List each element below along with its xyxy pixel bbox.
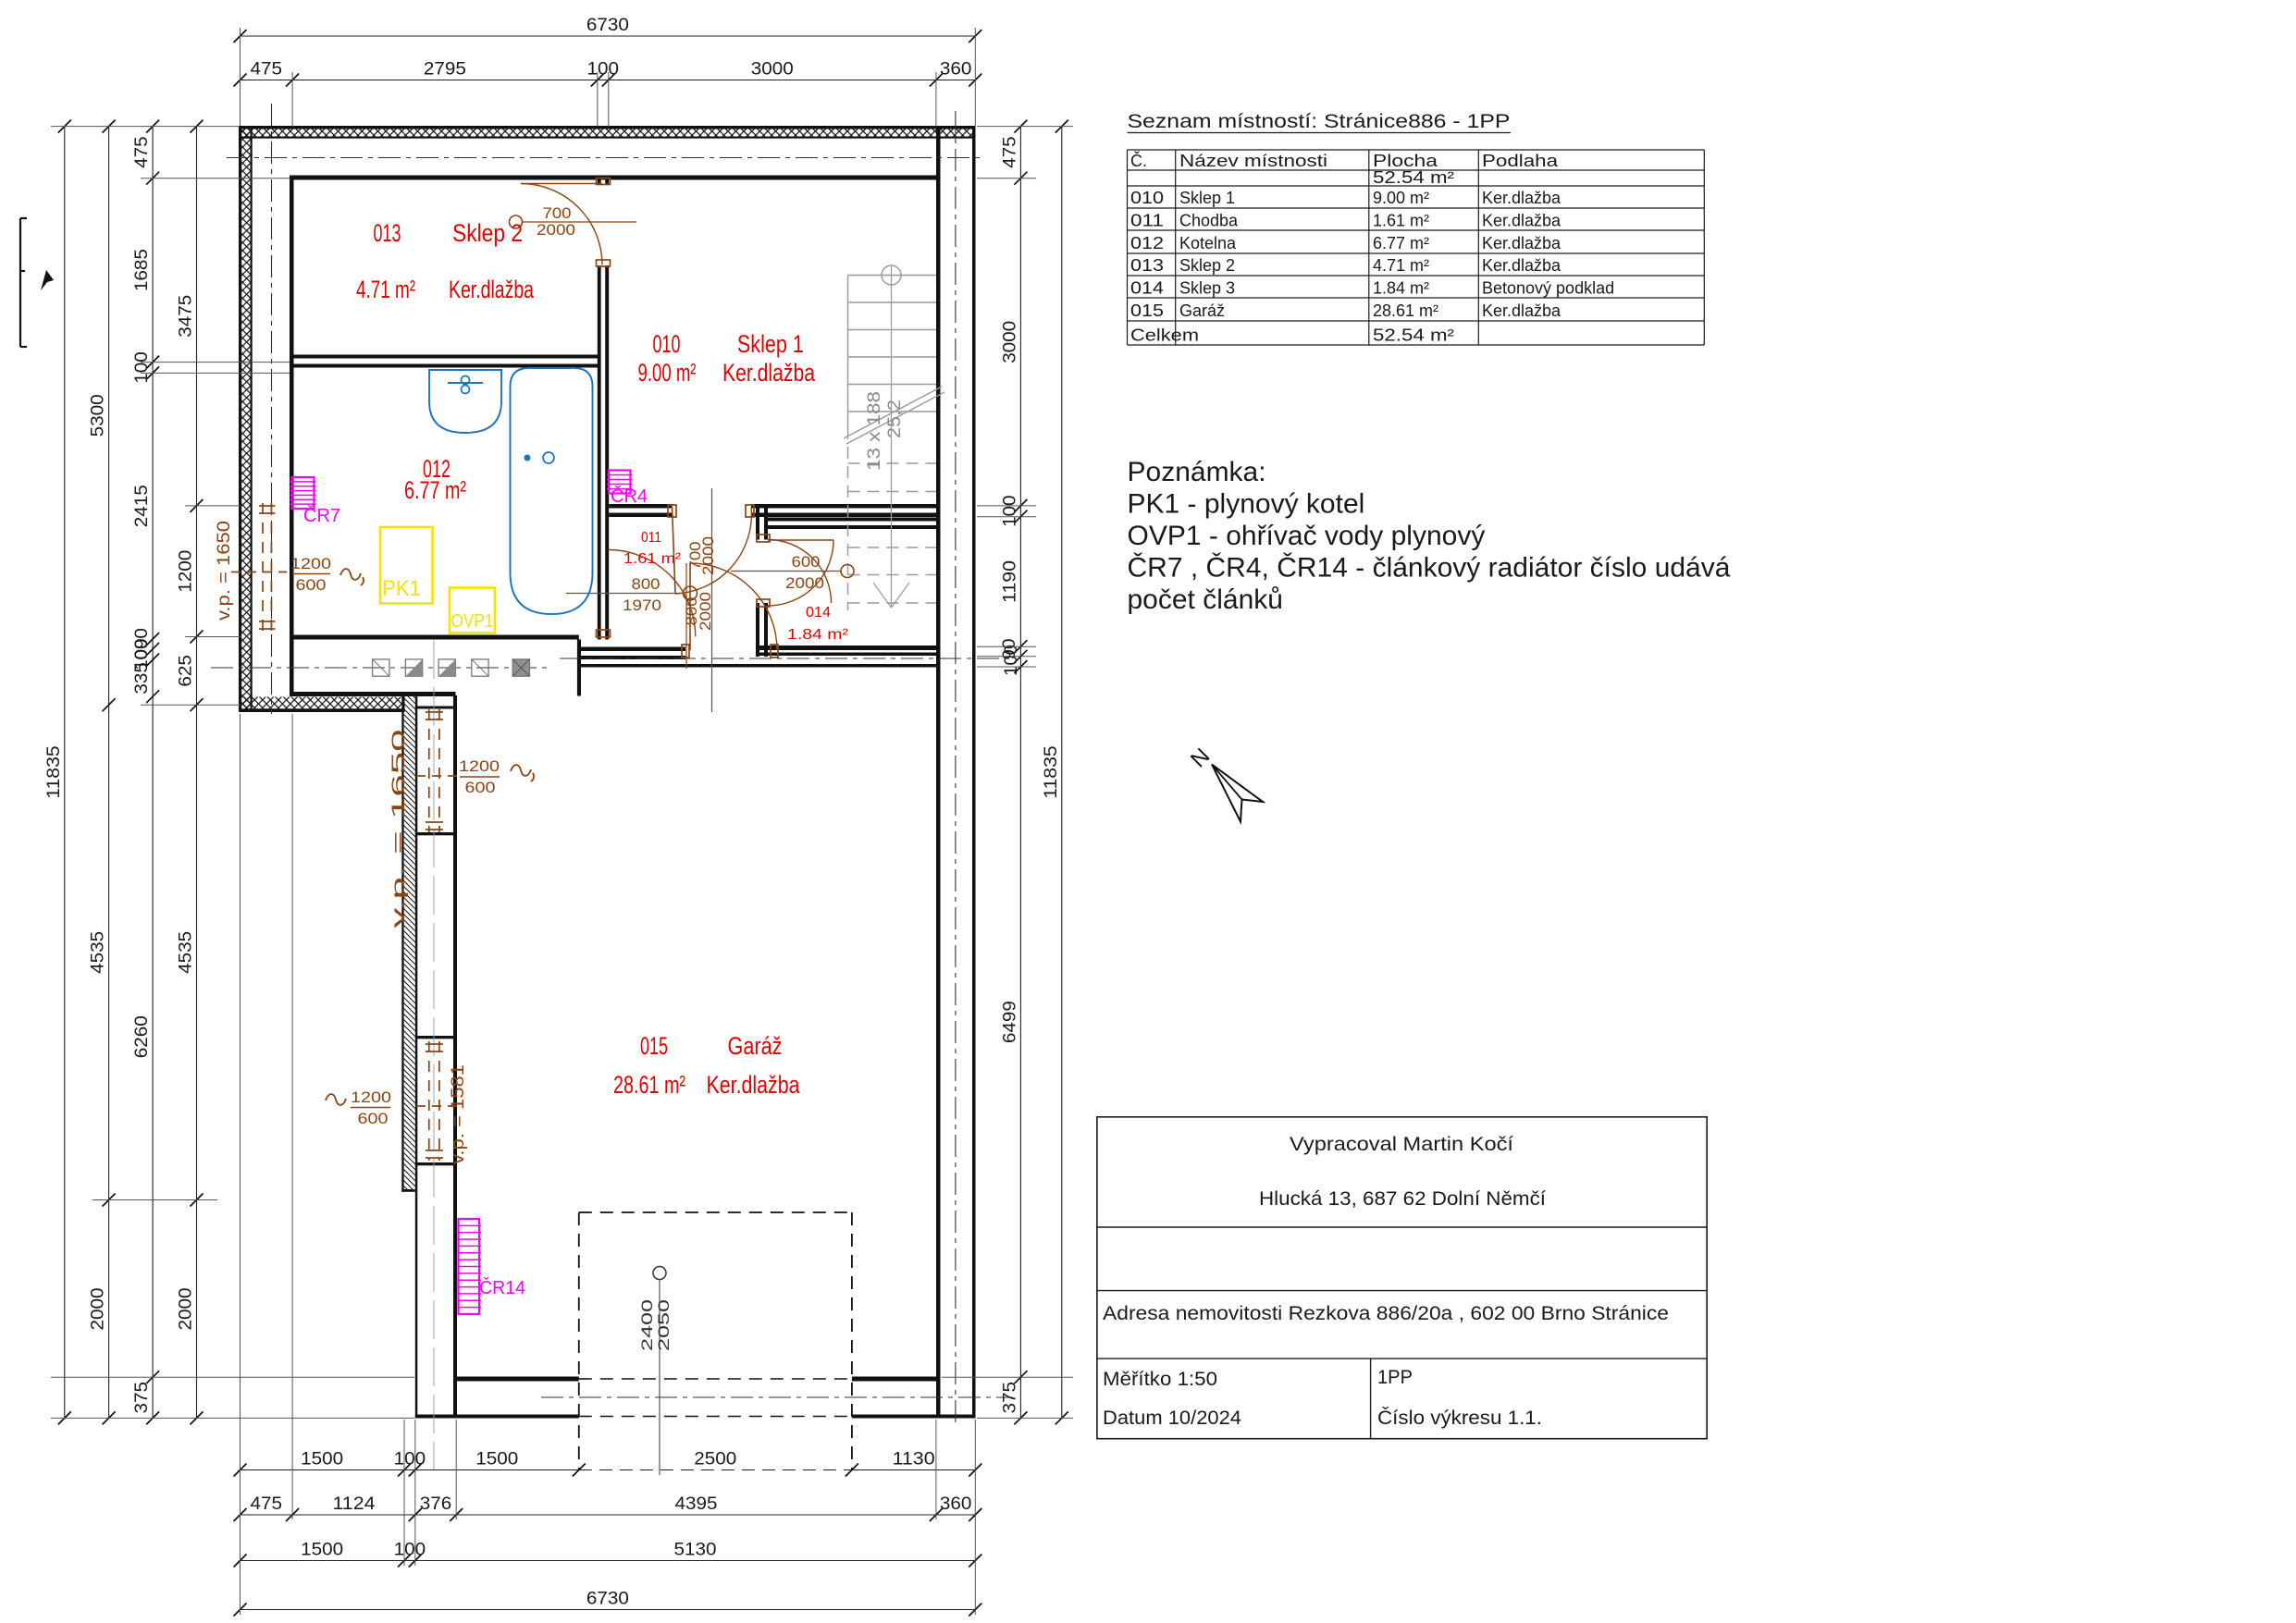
svg-text:9.00 m²: 9.00 m² — [638, 359, 697, 387]
svg-text:Sklep 1: Sklep 1 — [1179, 189, 1235, 207]
svg-text:Číslo výkresu 1.1.: Číslo výkresu 1.1. — [1377, 1408, 1542, 1429]
svg-text:014: 014 — [806, 605, 831, 621]
svg-text:1200: 1200 — [459, 757, 500, 775]
svg-text:011: 011 — [641, 530, 661, 546]
svg-text:700: 700 — [543, 205, 572, 222]
svg-text:PK1: PK1 — [382, 576, 421, 601]
svg-text:Poznámka:: Poznámka: — [1128, 457, 1266, 487]
svg-text:2000: 2000 — [697, 592, 714, 631]
svg-text:1124: 1124 — [333, 1494, 376, 1514]
svg-text:28.61 m²: 28.61 m² — [613, 1071, 685, 1099]
svg-text:2415: 2415 — [132, 485, 152, 527]
svg-text:2000: 2000 — [700, 536, 717, 575]
svg-text:13 x 188: 13 x 188 — [865, 391, 884, 471]
svg-text:475: 475 — [251, 60, 283, 80]
svg-text:Vypracoval Martin Kočí: Vypracoval Martin Kočí — [1290, 1134, 1513, 1155]
svg-text:Název místnosti: Název místnosti — [1179, 152, 1327, 170]
svg-text:Seznam místností: Stránice886: Seznam místností: Stránice886 - 1PP — [1128, 111, 1511, 132]
svg-text:4535: 4535 — [176, 931, 195, 974]
svg-text:1500: 1500 — [301, 1450, 343, 1469]
svg-text:375: 375 — [1000, 1382, 1019, 1414]
svg-text:600: 600 — [358, 1110, 389, 1127]
svg-text:376: 376 — [420, 1494, 452, 1514]
svg-text:Podlaha: Podlaha — [1482, 152, 1559, 170]
svg-text:počet článků: počet článků — [1128, 584, 1283, 615]
svg-text:335: 335 — [132, 662, 152, 695]
svg-text:3000: 3000 — [751, 60, 794, 80]
svg-text:6.77 m²: 6.77 m² — [1373, 234, 1429, 252]
svg-text:1PP: 1PP — [1377, 1367, 1413, 1388]
svg-text:4.71 m²: 4.71 m² — [1373, 256, 1429, 275]
svg-text:1500: 1500 — [475, 1450, 518, 1469]
svg-text:4535: 4535 — [89, 931, 108, 974]
svg-text:ČR7: ČR7 — [303, 505, 340, 526]
svg-text:100: 100 — [1000, 496, 1019, 528]
svg-text:Ker.dlažba: Ker.dlažba — [1482, 189, 1562, 207]
svg-text:600: 600 — [465, 779, 496, 796]
svg-text:5130: 5130 — [674, 1541, 717, 1560]
svg-text:Kotelna: Kotelna — [1179, 234, 1237, 252]
svg-text:6.77 m²: 6.77 m² — [404, 476, 466, 504]
svg-text:1200: 1200 — [351, 1088, 391, 1106]
svg-text:5300: 5300 — [89, 394, 108, 436]
svg-text:1.84 m²: 1.84 m² — [787, 627, 849, 643]
svg-text:1130: 1130 — [893, 1450, 935, 1469]
svg-text:11835: 11835 — [44, 745, 64, 799]
svg-text:4395: 4395 — [675, 1494, 718, 1514]
svg-text:800: 800 — [632, 576, 660, 593]
svg-text:015: 015 — [1130, 301, 1164, 320]
svg-text:3475: 3475 — [177, 295, 196, 338]
svg-text:28.61 m²: 28.61 m² — [1373, 301, 1438, 320]
svg-text:625: 625 — [177, 655, 196, 687]
svg-text:Datum 10/2024: Datum 10/2024 — [1103, 1408, 1241, 1429]
svg-text:11835: 11835 — [1042, 745, 1061, 799]
svg-text:2000: 2000 — [89, 1287, 108, 1330]
svg-text:Celkem: Celkem — [1130, 326, 1199, 345]
svg-text:1.84 m²: 1.84 m² — [1373, 279, 1429, 298]
svg-text:52.54 m²: 52.54 m² — [1373, 326, 1454, 345]
svg-text:ČR4: ČR4 — [611, 486, 648, 507]
svg-text:100: 100 — [394, 1450, 426, 1469]
svg-text:v.p. = 1581: v.p. = 1581 — [449, 1064, 468, 1164]
svg-text:2050: 2050 — [655, 1299, 673, 1351]
svg-text:475: 475 — [132, 136, 152, 168]
svg-text:014: 014 — [1130, 279, 1164, 298]
svg-text:475: 475 — [251, 1494, 283, 1514]
svg-text:6730: 6730 — [586, 16, 629, 35]
svg-text:1.61 m²: 1.61 m² — [1373, 211, 1429, 229]
svg-text:OVP1 - ohřívač vody plynový: OVP1 - ohřívač vody plynový — [1128, 521, 1486, 551]
svg-text:2000: 2000 — [177, 1287, 196, 1330]
svg-text:360: 360 — [940, 60, 972, 80]
svg-text:Ker.dlažba: Ker.dlažba — [1482, 234, 1562, 252]
svg-text:Plocha: Plocha — [1373, 152, 1438, 170]
svg-text:Sklep 2: Sklep 2 — [1179, 256, 1235, 275]
svg-text:Betonový podklad: Betonový podklad — [1482, 279, 1614, 298]
svg-text:Chodba: Chodba — [1179, 211, 1239, 229]
svg-text:6260: 6260 — [132, 1015, 152, 1058]
svg-text:100: 100 — [132, 351, 152, 384]
svg-text:1970: 1970 — [623, 597, 661, 614]
svg-text:6730: 6730 — [586, 1590, 629, 1609]
svg-text:100: 100 — [587, 60, 620, 80]
svg-text:1200: 1200 — [177, 550, 196, 593]
svg-text:375: 375 — [132, 1382, 152, 1414]
svg-text:Sklep 2: Sklep 2 — [452, 219, 523, 247]
svg-text:015: 015 — [640, 1032, 668, 1060]
svg-text:100: 100 — [1002, 645, 1021, 676]
svg-text:2400: 2400 — [638, 1299, 656, 1351]
svg-text:Sklep 3: Sklep 3 — [1179, 279, 1235, 298]
svg-text:Ker.dlažba: Ker.dlažba — [1482, 301, 1562, 320]
svg-text:2000: 2000 — [537, 222, 575, 239]
svg-text:25,2: 25,2 — [885, 400, 905, 438]
svg-text:OVP1: OVP1 — [451, 611, 494, 632]
svg-text:010: 010 — [1130, 189, 1164, 207]
svg-text:2500: 2500 — [694, 1450, 736, 1469]
svg-text:v.p. = 1650: v.p. = 1650 — [389, 730, 409, 928]
svg-text:6499: 6499 — [1000, 1001, 1019, 1043]
svg-text:Garáž: Garáž — [1179, 301, 1225, 320]
svg-text:3000: 3000 — [1000, 321, 1019, 363]
svg-text:Adresa nemovitosti Rezkova 886: Adresa nemovitosti Rezkova 886/20a , 602… — [1103, 1303, 1669, 1324]
svg-text:600: 600 — [296, 576, 327, 594]
svg-text:Hlucká 13, 687 62 Dolní Němčí: Hlucká 13, 687 62 Dolní Němčí — [1259, 1188, 1546, 1210]
svg-text:Garáž: Garáž — [728, 1032, 783, 1060]
svg-text:011: 011 — [1130, 211, 1164, 229]
svg-text:360: 360 — [940, 1494, 972, 1514]
svg-text:1190: 1190 — [1000, 560, 1019, 603]
svg-text:v.p. = 1650: v.p. = 1650 — [215, 521, 234, 621]
svg-text:013: 013 — [1130, 256, 1164, 275]
svg-text:Ker.dlažba: Ker.dlažba — [707, 1071, 801, 1099]
svg-text:52.54 m²: 52.54 m² — [1373, 168, 1454, 187]
svg-text:2000: 2000 — [785, 575, 824, 592]
svg-text:1200: 1200 — [290, 555, 331, 572]
svg-text:2795: 2795 — [424, 60, 466, 80]
svg-text:012: 012 — [1130, 234, 1164, 252]
svg-text:PK1 - plynový kotel: PK1 - plynový kotel — [1128, 489, 1365, 520]
svg-text:Ker.dlažba: Ker.dlažba — [449, 276, 535, 303]
svg-text:1685: 1685 — [132, 249, 152, 291]
svg-text:Ker.dlažba: Ker.dlažba — [1482, 256, 1562, 275]
svg-text:Měřítko 1:50: Měřítko 1:50 — [1103, 1369, 1217, 1390]
svg-text:013: 013 — [374, 219, 401, 247]
svg-text:Ker.dlažba: Ker.dlažba — [1482, 211, 1562, 229]
svg-text:ČR14: ČR14 — [479, 1277, 525, 1298]
svg-text:100: 100 — [394, 1541, 426, 1560]
svg-text:9.00 m²: 9.00 m² — [1373, 189, 1429, 207]
svg-text:4.71 m²: 4.71 m² — [356, 276, 415, 303]
svg-text:Ker.dlažba: Ker.dlažba — [722, 359, 816, 387]
svg-text:ČR7 , ČR4, ČR14 - článkový rad: ČR7 , ČR4, ČR14 - článkový radiátor čísl… — [1128, 552, 1731, 584]
svg-text:1.61 m²: 1.61 m² — [623, 551, 682, 567]
svg-text:475: 475 — [1000, 136, 1019, 168]
svg-text:Sklep 1: Sklep 1 — [737, 330, 804, 358]
svg-text:010: 010 — [653, 330, 681, 358]
svg-text:Č.: Č. — [1130, 151, 1147, 170]
svg-text:1500: 1500 — [301, 1541, 343, 1560]
